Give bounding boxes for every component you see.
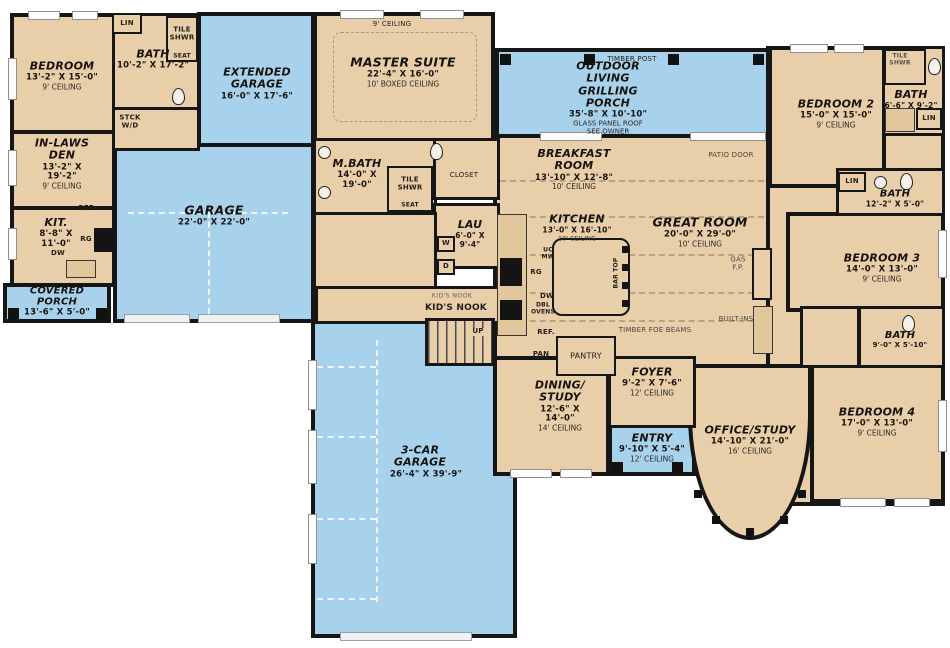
window [840,498,886,507]
bar-stool-mark [622,300,629,307]
pantry-label: PANTRY [570,353,602,362]
kitchen-label: KITCHEN 13'-0" X 16'-10" 10' CEILING [532,214,622,243]
floor-plan: BEDROOM 13'-2" X 15'-0" 9' CEILING BATH … [0,0,950,648]
timber-post-icon [753,54,764,65]
range-label: RG [530,269,542,277]
master-suite-label: MASTER SUITE 22'-4" X 16'-0" 10' BOXED C… [328,56,478,89]
parking-bay-line [317,436,376,438]
lin-label: LIN [120,20,134,28]
toilet-icon [900,173,913,190]
window [510,469,552,478]
bedroom-2-label: BEDROOM 2 15'-0" X 15'-0" 9' CEILING [788,98,884,129]
entry-post-icon [672,462,683,473]
bedroom-3-label: BEDROOM 3 14'-0" X 13'-0" 9' CEILING [834,252,930,283]
bar-stool-mark [622,282,629,289]
room-master-closet [313,212,437,290]
ceiling-9-label: 9' CEILING [373,21,412,29]
double-ovens [500,300,522,320]
window [8,228,17,260]
window [938,230,947,278]
kids-nook-small-label: KID'S NOOK [432,292,473,299]
bay-window-mullion [712,516,720,524]
inlaws-den-label: IN-LAWS DEN 13'-2" X 19'-2" 9' CEILING [26,137,98,190]
range [500,258,522,286]
master-bath-label: M.BATH 14'-0" X 19'-0" [324,158,390,190]
breakfast-room-label: BREAKFAST ROOM 13'-10" X 12'-8" 10' CEIL… [532,148,616,192]
covered-porch-label: COVERED PORCH 13'-6" X 5'-0" [18,286,96,319]
tile-shower-label: TILE SHWR [169,26,195,41]
kids-nook-label: KID'S NOOK [425,304,487,314]
extended-garage-label: EXTENDED GARAGE 16'-0" X 17'-6" [219,66,295,101]
great-room-label: GREAT ROOM 20'-0" X 29'-0" 10' CEILING [640,216,760,249]
sink-icon [874,176,887,189]
uc-mw-label: UC MW [540,247,556,260]
pantry-small-label: PAN [533,351,549,359]
office-study-label: OFFICE/STUDY 14'-10" X 21'-0" 16' CEILIN… [695,424,805,455]
tile-shower-label: TILE SHWR [889,53,911,66]
window [308,360,317,410]
timber-beams-label: TIMBER FOE BEAMS [600,327,710,335]
window [8,58,17,100]
kit-label: KIT. 8'-8" X 11'-0" [29,217,83,249]
window [8,150,17,186]
fireplace [752,248,772,300]
bath-3-label: BATH 12'-2" X 5'-0" [855,189,935,210]
toilet-icon [172,88,185,105]
dishwasher-label: DW [51,250,65,258]
dining-study-label: DINING/ STUDY 12'-6" X 14'-0" 14' CEILIN… [528,379,592,432]
closet-label: CLOSET [450,172,478,180]
porch-post-icon [96,308,107,319]
up-label: UP [471,328,484,336]
window [28,11,60,20]
ref-label: REF. [537,329,554,337]
ref-label: REF [78,205,94,213]
window [560,469,592,478]
laundry-label: LAU 6'-0" X 9'-4" [448,219,492,249]
room-closet-4 [800,306,860,368]
window [938,400,947,452]
window [420,10,464,19]
bar-stool-mark [622,246,629,253]
staircase [425,318,495,366]
entry-label: ENTRY 9'-10" X 5'-4" 12' CEILING [612,432,692,463]
patio-door-label: PATIO DOOR [699,152,763,160]
window [790,44,828,53]
parking-bay-line [317,518,376,520]
washer-label: W [442,240,450,248]
room-garage [113,143,315,323]
garage-door [124,314,190,323]
window [72,11,98,20]
dryer-label: D [443,263,449,271]
bedroom-1-label: BEDROOM 13'-2" X 15'-0" 9' CEILING [17,60,107,91]
tile-shower-label: TILE SHWR [397,176,423,191]
window [894,498,930,507]
parking-bay-line [376,340,378,602]
bar-top-label: BAR TOP [614,258,621,289]
gas-fireplace-label: GAS F.P. [726,256,750,271]
room-master-closet-small [433,138,500,200]
entry-post-icon [612,462,623,473]
seat-label: SEAT [401,203,419,210]
bath-4-label: BATH 9'-0" X 5'-10" [872,330,928,350]
bay-window-mullion [746,528,754,536]
dishwasher-label: DW [540,293,554,301]
stacked-washer-dryer-label: STCK W/D [115,114,145,129]
inlaw-counter [66,260,96,278]
built-ins-cabinet [753,306,773,354]
bay-window-mullion [798,490,806,498]
window [834,44,864,53]
garage-door [340,632,472,641]
double-ovens-label: DBL OVENS [530,302,556,315]
timber-post-icon [668,54,679,65]
patio-door [690,132,766,141]
parking-bay-line [317,598,376,600]
window [308,430,317,484]
bath-2-label: BATH 6'-6" X 9'-2" [879,89,943,111]
timber-post-icon [500,54,511,65]
built-ins-label: BUILT-INS [706,316,766,324]
vanity-bath-2 [885,108,915,132]
garage-label: GARAGE 22'-0" X 22'-0" [159,204,269,229]
seat-label: SEAT [173,54,191,61]
garage-door [198,314,280,323]
bedroom-4-label: BEDROOM 4 17'-0" X 13'-0" 9' CEILING [827,406,927,437]
bay-window-mullion [694,490,702,498]
bay-window-mullion [780,516,788,524]
window [340,10,384,19]
range-label: RG [80,236,92,244]
foyer-label: FOYER 9'-2" X 7'-6" 12' CEILING [612,366,692,397]
inlaw-range [94,228,113,252]
bar-stool-mark [622,264,629,271]
toilet-icon [430,143,443,160]
lin-label: LIN [922,115,936,123]
timber-post-label: TIMBER POST [597,56,667,64]
window [308,514,317,564]
3-car-garage-label: 3-CAR GARAGE 26'-4" X 39'-9" [390,444,450,479]
parking-bay-line [317,366,376,368]
lin-label: LIN [845,178,859,186]
outdoor-living-label: OUTDOOR LIVING GRILLING PORCH 35'-8" X 1… [556,60,660,135]
toilet-icon [928,58,941,75]
